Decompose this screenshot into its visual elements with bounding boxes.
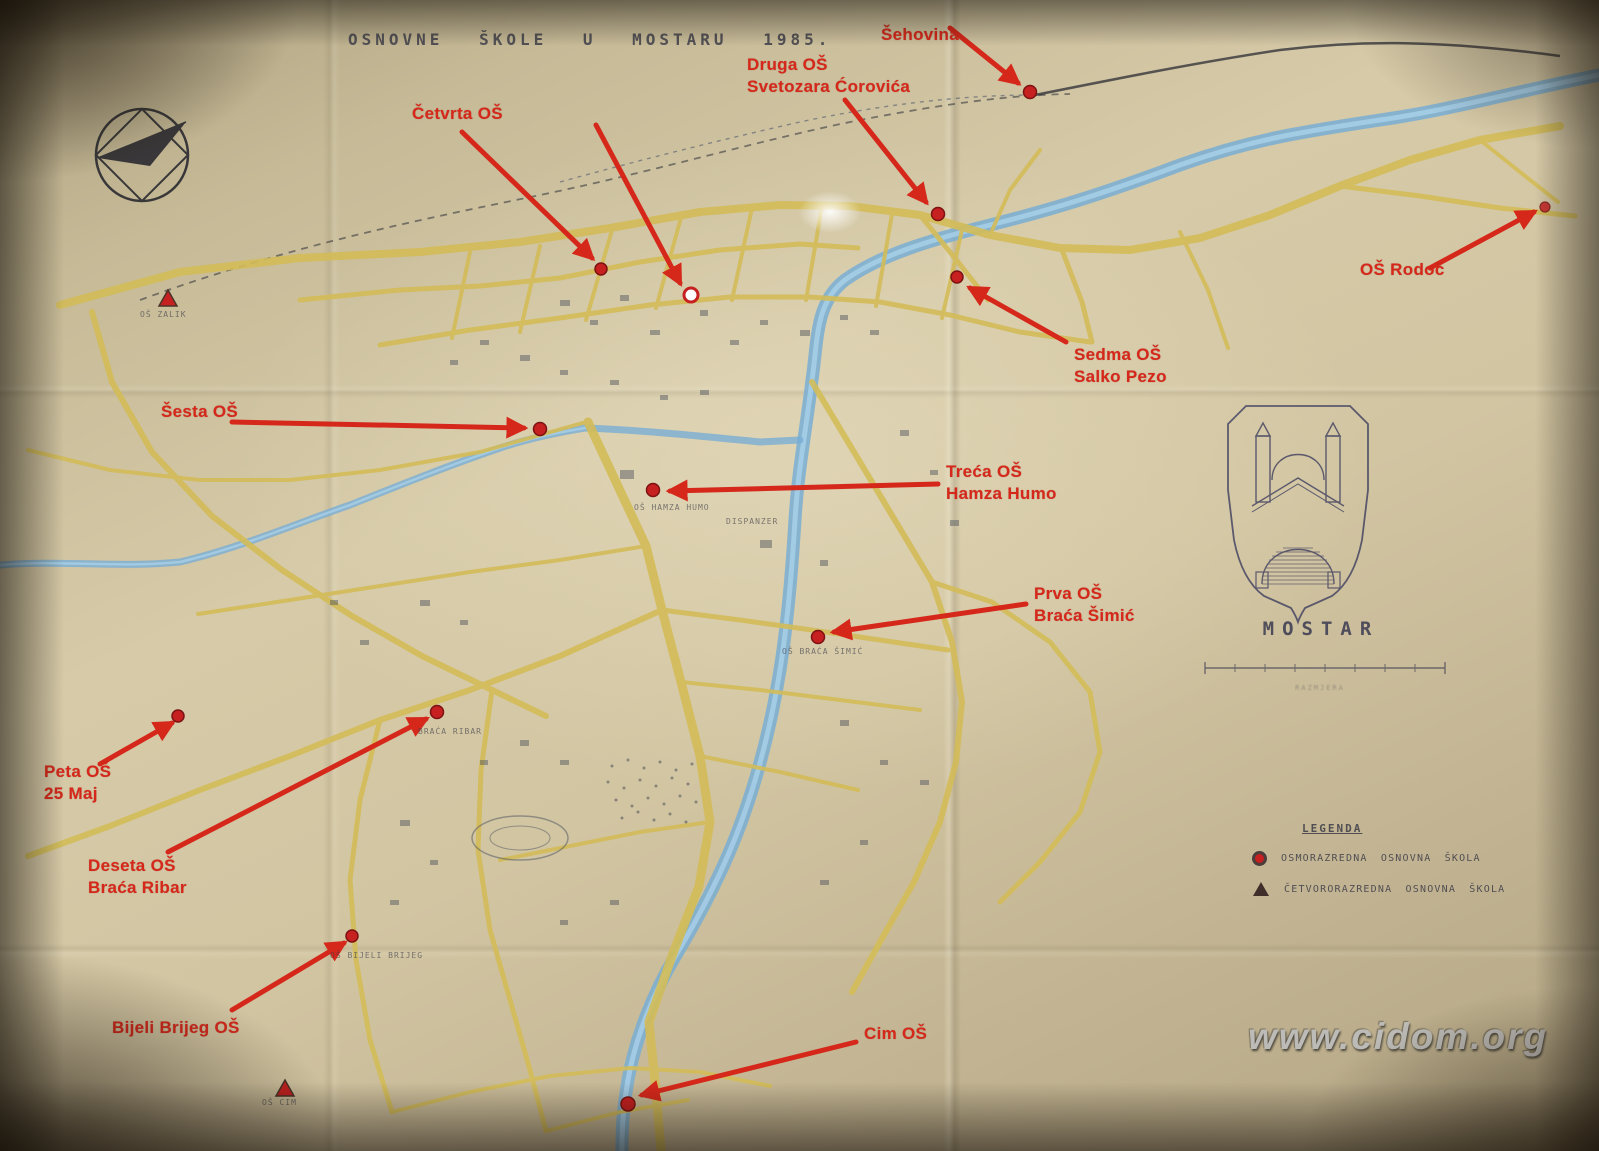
map-artwork — [0, 0, 1599, 1151]
scale-bar — [1205, 662, 1445, 674]
legend-item-eight-grade: OSMORAZREDNA OSNOVNA ŠKOLA — [1240, 851, 1540, 866]
map-label-hamza-humo: OŠ HAMZA HUMO — [634, 503, 710, 512]
school-marker-sehovina — [1024, 86, 1037, 99]
annotation-arrow-center — [596, 125, 680, 283]
annotation-arrow-treca-os — [670, 484, 938, 491]
map-label-braca-ribar: BRAĆA RIBAR — [418, 727, 482, 736]
legend-item-label: OSMORAZREDNA OSNOVNA ŠKOLA — [1281, 853, 1481, 864]
map-label-cim: OŠ CIM — [262, 1098, 297, 1107]
river-radobolja — [0, 428, 800, 565]
annotation-arrow-sehovina — [950, 28, 1018, 83]
annotation-sehovina: Šehovina — [881, 24, 959, 46]
annotation-arrow-cim-os — [642, 1042, 856, 1095]
annotation-line: Prva OŠ — [1034, 583, 1135, 605]
annotation-sedma-os: Sedma OŠ Salko Pezo — [1074, 344, 1167, 388]
annotation-line: Četvrta OŠ — [412, 103, 503, 125]
school-marker-peta-os — [172, 710, 184, 722]
annotation-line: OŠ Rodoč — [1360, 259, 1445, 281]
annotation-druga-os: Druga OŠ Svetozara Ćorovića — [747, 54, 910, 98]
map-label-dispanzer: DISPANZER — [726, 517, 778, 526]
annotation-line: Cim OŠ — [864, 1023, 927, 1045]
four-grade-marker-cim — [276, 1080, 294, 1096]
annotation-line: Hamza Humo — [946, 483, 1057, 505]
annotation-cim-os: Cim OŠ — [864, 1023, 927, 1045]
school-marker-os-rodoc — [1540, 202, 1550, 212]
compass-rose-icon — [96, 109, 188, 201]
school-marker-cetvrta-os — [595, 263, 607, 275]
school-marker-prva-os — [812, 631, 825, 644]
map-label-braca-simic: OŠ BRAĆA ŠIMIĆ — [782, 647, 863, 656]
annotation-arrow-os-rodoc — [1430, 212, 1534, 268]
annotation-line: Druga OŠ — [747, 54, 910, 76]
stadium-outline — [472, 816, 568, 860]
school-marker-treca-os — [647, 484, 660, 497]
school-marker-druga-os — [932, 208, 945, 221]
school-marker-sesta-os — [534, 423, 547, 436]
annotation-bijeli-brijeg: Bijeli Brijeg OŠ — [112, 1017, 240, 1039]
annotation-line: Šehovina — [881, 24, 959, 46]
school-marker-center-white — [684, 288, 698, 302]
annotation-arrows — [100, 28, 1534, 1095]
annotation-line: Salko Pezo — [1074, 366, 1167, 388]
annotation-treca-os: Treća OŠ Hamza Humo — [946, 461, 1057, 505]
annotation-line: Treća OŠ — [946, 461, 1057, 483]
dotted-area — [607, 759, 698, 824]
mostar-schools-map-photo: OSNOVNE ŠKOLE U MOSTARU 1985. OŠ ZALIK O… — [0, 0, 1599, 1151]
map-title: OSNOVNE ŠKOLE U MOSTARU 1985. — [348, 30, 831, 49]
watermark: www.cidom.org — [1248, 1016, 1548, 1058]
annotation-line: Braća Ribar — [88, 877, 187, 899]
school-marker-deseta-os — [431, 706, 444, 719]
legend-item-four-grade: ČETVORORAZREDNA OSNOVNA ŠKOLA — [1240, 882, 1540, 896]
map-label-bijeli-brijeg: OŠ BIJELI BRIJEG — [330, 951, 423, 960]
annotation-line: Peta OŠ — [44, 761, 111, 783]
legend: LEGENDA OSMORAZREDNA OSNOVNA ŠKOLA ČETVO… — [1240, 822, 1540, 896]
annotation-cetvrta-os: Četvrta OŠ — [412, 103, 503, 125]
annotation-line: Šesta OŠ — [161, 401, 238, 423]
annotation-line: Deseta OŠ — [88, 855, 187, 877]
annotation-arrow-bijeli-brijeg — [232, 943, 344, 1010]
annotation-arrow-sesta-os — [232, 422, 524, 428]
map-label-zalik: OŠ ZALIK — [140, 310, 187, 319]
annotation-line: Braća Šimić — [1034, 605, 1135, 627]
annotation-os-rodoc: OŠ Rodoč — [1360, 259, 1445, 281]
eight-grade-school-marker-icon — [1252, 851, 1267, 866]
city-name-caption: MOSTAR — [1256, 618, 1386, 640]
railway-line-east — [1035, 43, 1560, 95]
annotation-line: Bijeli Brijeg OŠ — [112, 1017, 240, 1039]
annotation-deseta-os: Deseta OŠ Braća Ribar — [88, 855, 187, 899]
four-grade-marker-zalik — [159, 290, 177, 306]
school-marker-sedma-os — [951, 271, 963, 283]
mostar-emblem — [1228, 406, 1368, 622]
annotation-arrow-peta-os — [100, 723, 172, 764]
annotation-line: 25 Maj — [44, 783, 111, 805]
annotation-line: Svetozara Ćorovića — [747, 76, 910, 98]
four-grade-school-marker-icon — [1253, 882, 1269, 896]
legend-item-label: ČETVORORAZREDNA OSNOVNA ŠKOLA — [1284, 884, 1505, 895]
school-marker-bijeli-brijeg — [346, 930, 358, 942]
annotation-line: Sedma OŠ — [1074, 344, 1167, 366]
legend-heading: LEGENDA — [1302, 822, 1540, 835]
annotation-peta-os: Peta OŠ 25 Maj — [44, 761, 111, 805]
scale-caption: RAZMJERA — [1240, 684, 1400, 692]
annotation-prva-os: Prva OŠ Braća Šimić — [1034, 583, 1135, 627]
annotation-arrow-prva-os — [834, 604, 1026, 632]
school-marker-cim-os — [621, 1097, 635, 1111]
boundary-dashed-line — [560, 95, 1035, 182]
annotation-sesta-os: Šesta OŠ — [161, 401, 238, 423]
